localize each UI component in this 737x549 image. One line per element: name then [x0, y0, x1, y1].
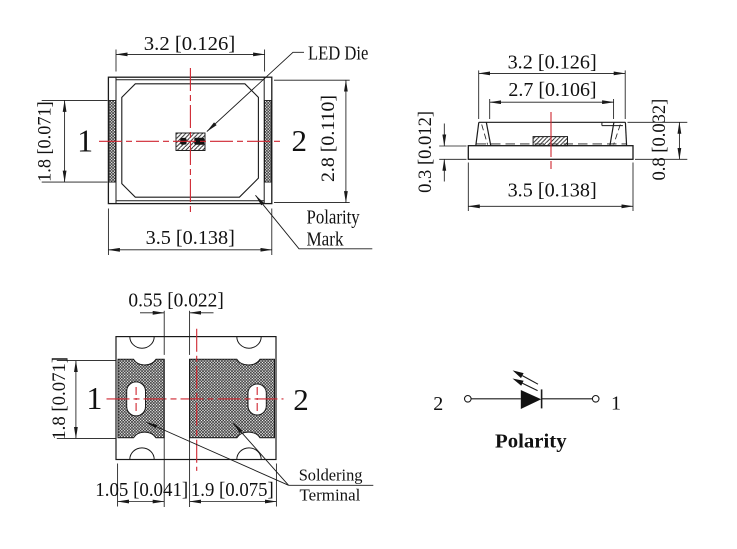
svg-text:1: 1: [77, 122, 93, 158]
svg-text:Terminal: Terminal: [300, 485, 361, 504]
svg-text:3.5 [0.138]: 3.5 [0.138]: [508, 180, 597, 202]
svg-text:3.5 [0.138]: 3.5 [0.138]: [146, 227, 235, 249]
svg-text:Mark: Mark: [307, 229, 344, 250]
svg-text:2: 2: [291, 123, 307, 158]
svg-text:Polarity: Polarity: [307, 208, 360, 229]
svg-text:2.8 [0.110]: 2.8 [0.110]: [318, 95, 339, 182]
svg-text:3.2 [0.126]: 3.2 [0.126]: [144, 33, 236, 55]
svg-text:0.55 [0.022]: 0.55 [0.022]: [128, 289, 223, 311]
svg-text:2: 2: [433, 393, 443, 415]
svg-text:1.8 [0.071]: 1.8 [0.071]: [35, 101, 56, 181]
svg-text:3.2 [0.126]: 3.2 [0.126]: [508, 52, 597, 74]
svg-text:Polarity: Polarity: [495, 431, 567, 453]
svg-text:1.05 [0.041]: 1.05 [0.041]: [95, 479, 188, 501]
svg-text:1.8 [0.071]: 1.8 [0.071]: [49, 357, 70, 440]
svg-text:Soldering: Soldering: [299, 465, 363, 484]
svg-text:0.8 [0.032]: 0.8 [0.032]: [649, 99, 670, 181]
svg-text:1: 1: [611, 393, 621, 415]
svg-text:1: 1: [86, 380, 102, 416]
svg-text:LED Die: LED Die: [308, 43, 368, 64]
svg-text:2: 2: [293, 382, 309, 417]
svg-text:0.3 [0.012]: 0.3 [0.012]: [415, 111, 436, 193]
svg-text:2.7 [0.106]: 2.7 [0.106]: [508, 79, 596, 101]
svg-text:1.9 [0.075]: 1.9 [0.075]: [191, 479, 274, 501]
